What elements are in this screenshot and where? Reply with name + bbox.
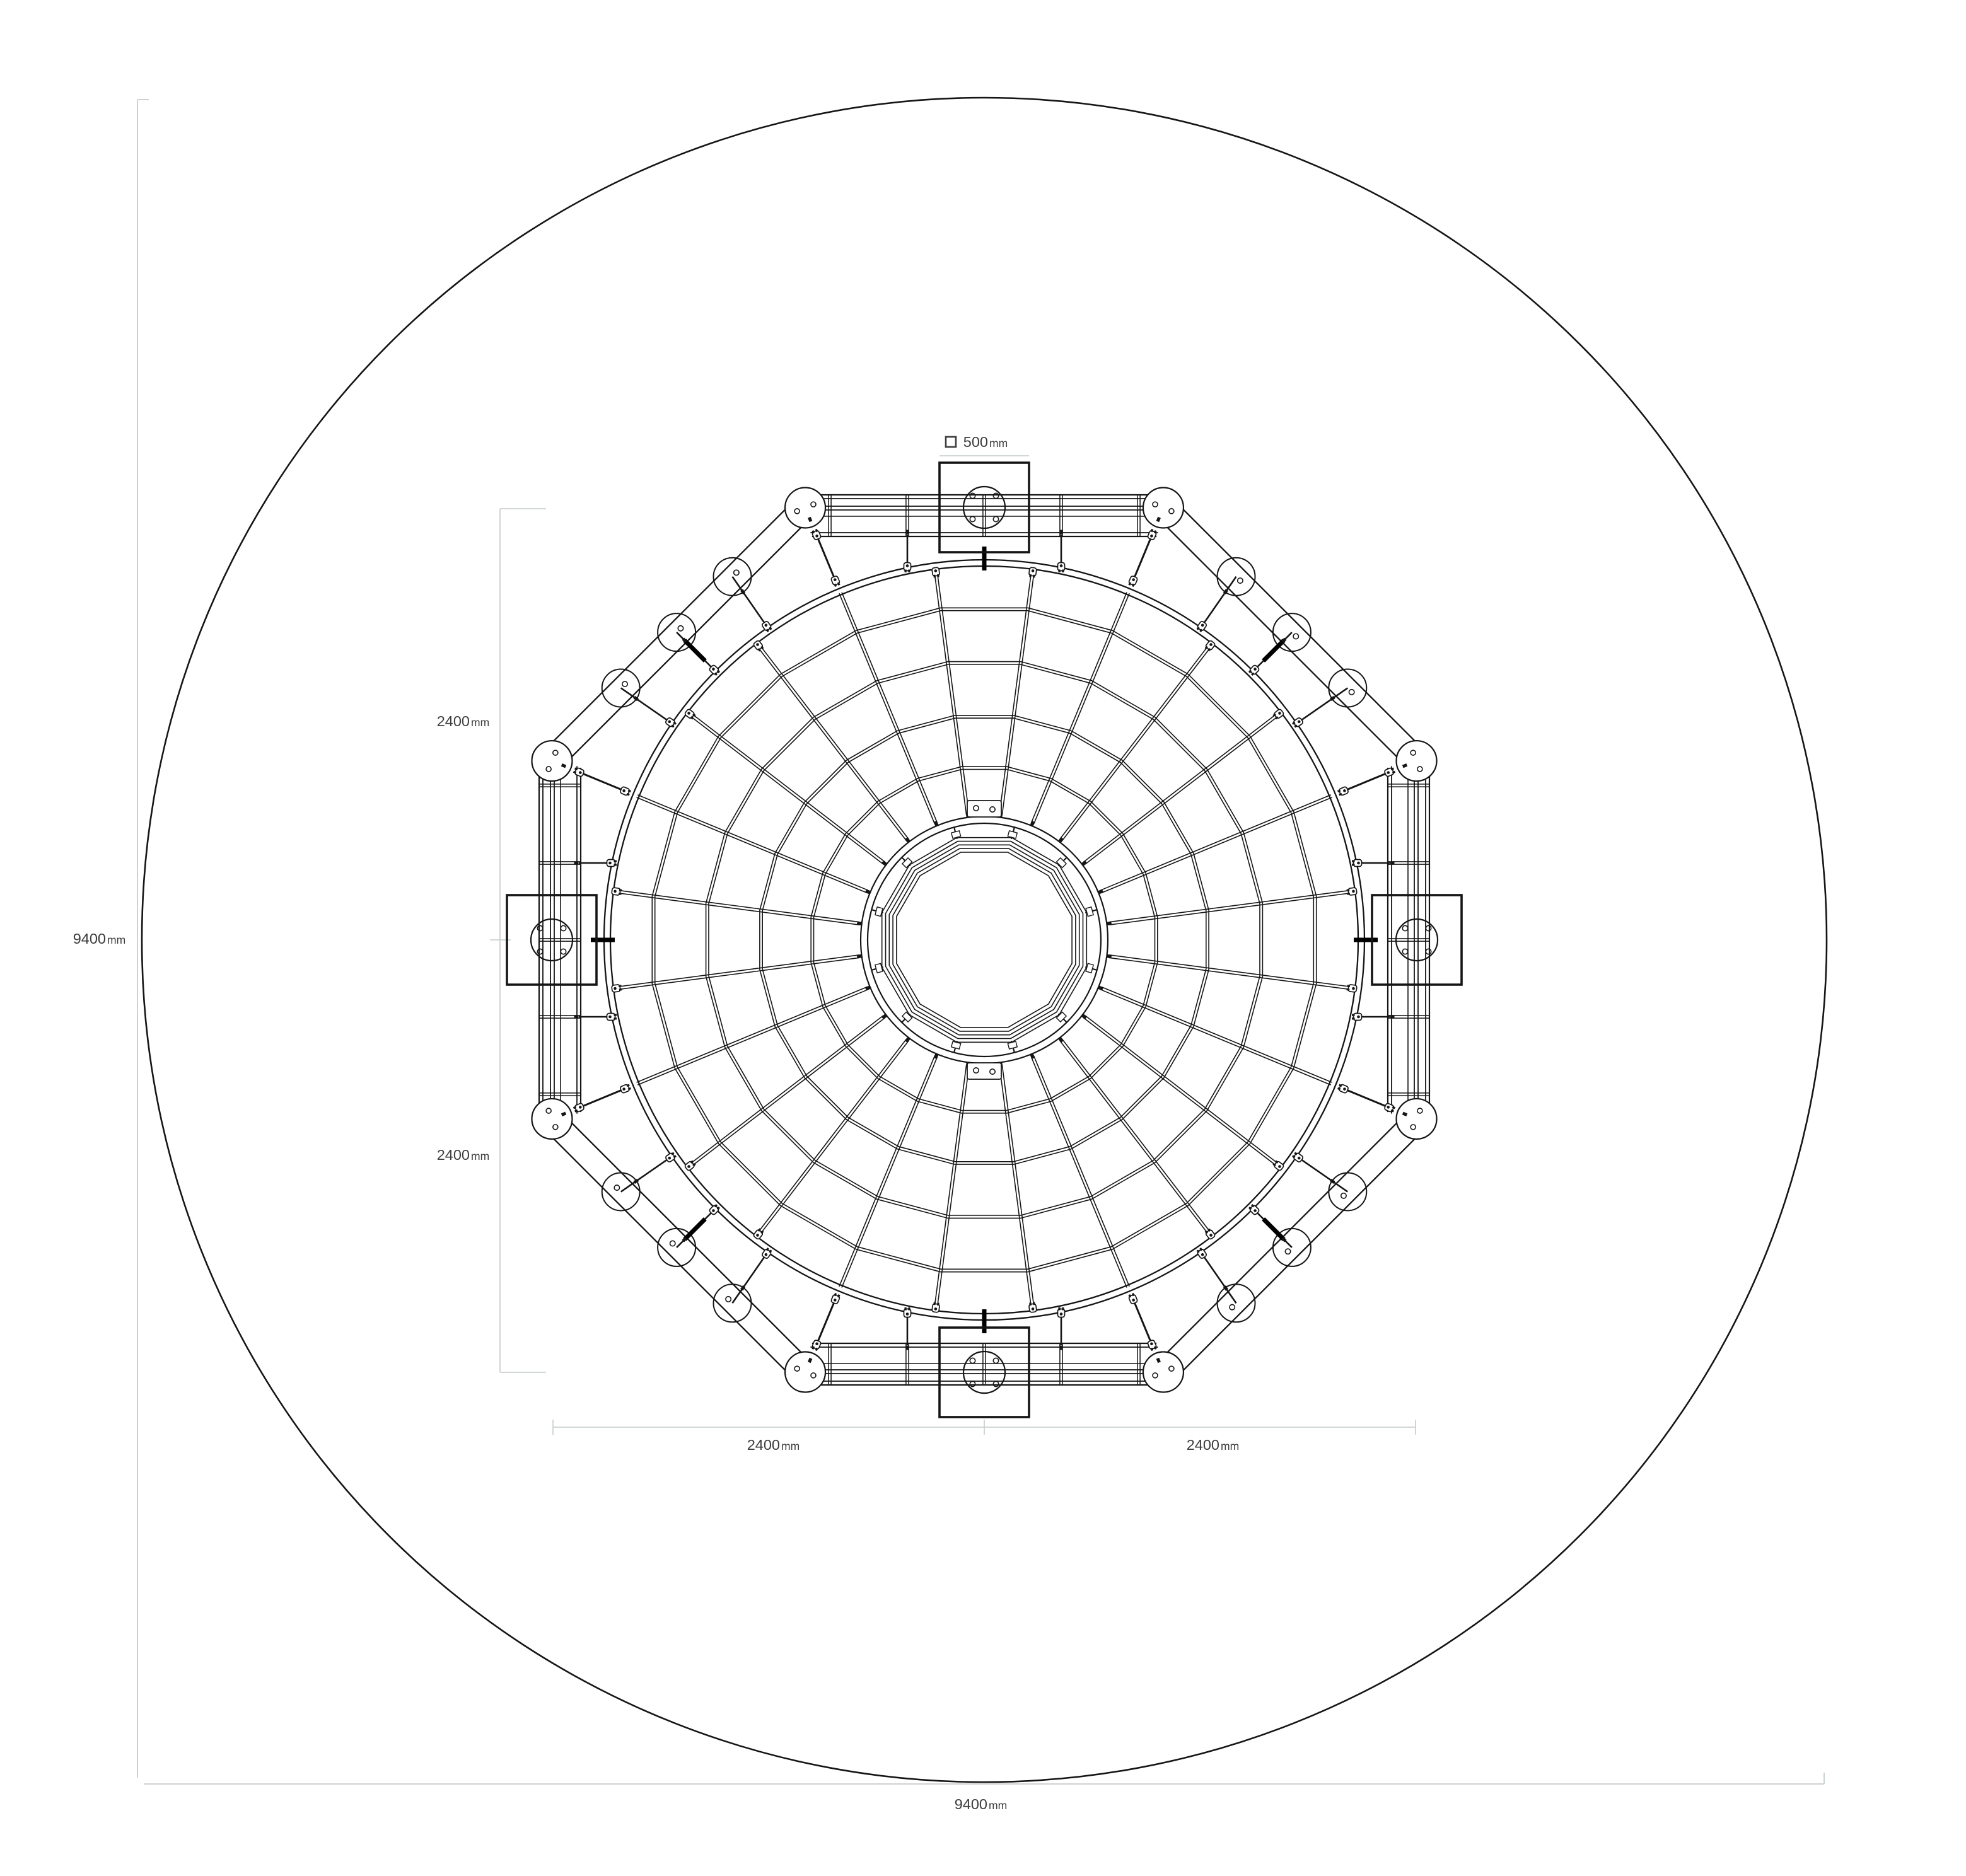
bottom-left-dimension-value: 2400 xyxy=(747,1437,780,1453)
base-plate-squares xyxy=(507,463,1462,1417)
left-upper-dimension-unit: mm xyxy=(471,716,489,729)
dimension-annotations: 500 mm 2400 mm 2400 mm 9400 mm 2400 mm 2… xyxy=(73,434,1239,1812)
center-ring-assembly xyxy=(857,801,1112,1079)
bottom-right-dimension-value: 2400 xyxy=(1187,1437,1219,1453)
site-boundary-and-dimension-lines xyxy=(137,100,1824,1784)
left-lower-dimension-value: 2400 xyxy=(437,1147,470,1163)
structure-linework xyxy=(137,98,1827,1784)
left-lower-dimension-unit: mm xyxy=(471,1150,489,1162)
left-overall-dimension-unit: mm xyxy=(107,934,125,946)
drawing-canvas: 500 mm 2400 mm 2400 mm 9400 mm 2400 mm 2… xyxy=(0,0,1966,1876)
square-symbol-icon xyxy=(946,437,956,447)
bottom-right-dimension-unit: mm xyxy=(1221,1440,1239,1452)
technical-plan-drawing: 500 mm 2400 mm 2400 mm 9400 mm 2400 mm 2… xyxy=(0,0,1966,1876)
bottom-overall-dimension-value: 9400 xyxy=(955,1796,987,1812)
plate-dimension-value: 500 xyxy=(963,434,988,450)
bottom-left-dimension-unit: mm xyxy=(781,1440,800,1452)
left-overall-dimension-value: 9400 xyxy=(73,930,106,947)
left-upper-dimension-value: 2400 xyxy=(437,713,470,729)
bottom-overall-dimension-unit: mm xyxy=(989,1799,1007,1812)
site-circle xyxy=(142,98,1827,1782)
climbing-net-web xyxy=(604,560,1364,1320)
plate-dimension-unit: mm xyxy=(989,437,1008,449)
